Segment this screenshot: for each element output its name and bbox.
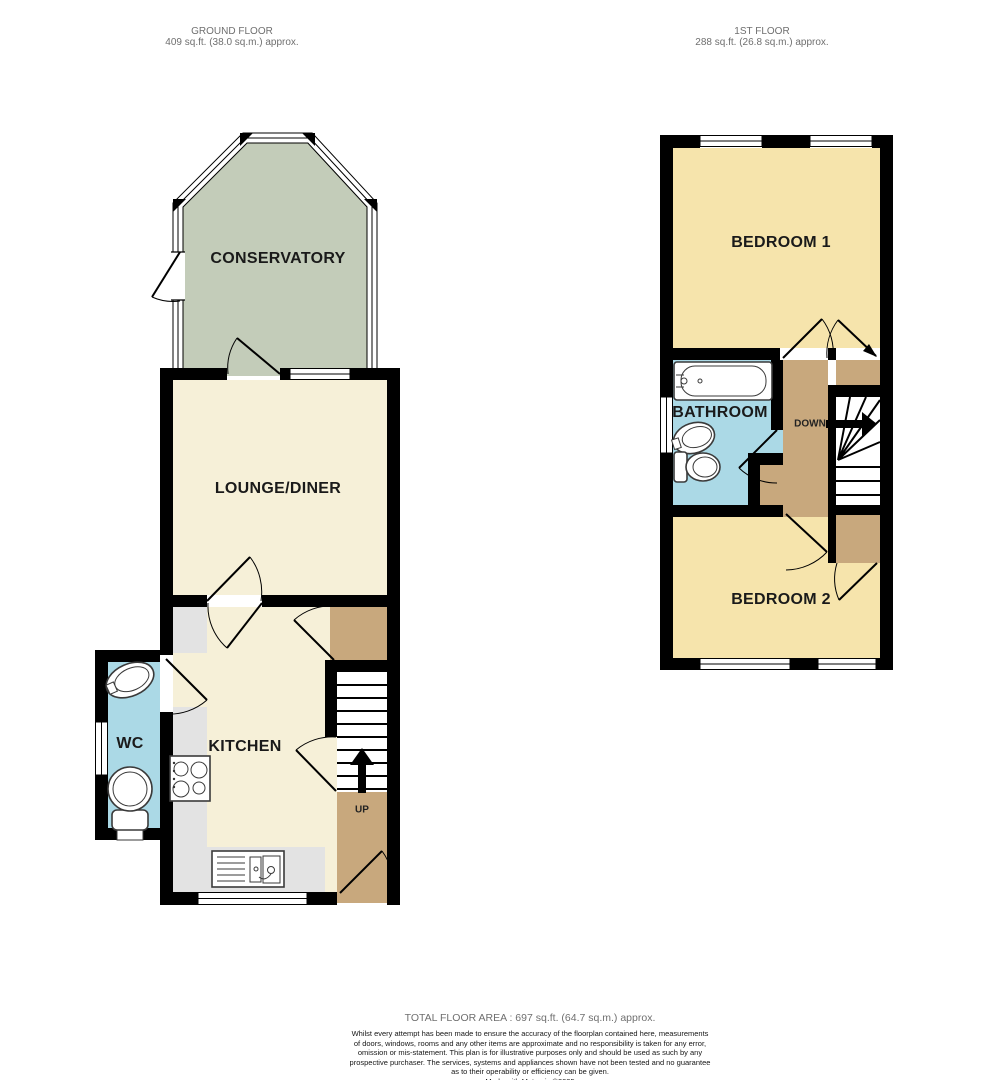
landing-strip <box>836 360 880 385</box>
disclaimer-line: omission or mis-statement. This plan is … <box>320 1048 740 1058</box>
bathroom-label: BATHROOM <box>672 404 767 422</box>
first-floor-header: 1ST FLOOR 288 sq.ft. (26.8 sq.m.) approx… <box>695 26 828 48</box>
floorplan-canvas: GROUND FLOOR 409 sq.ft. (38.0 sq.m.) app… <box>0 0 999 1080</box>
wc-toilet <box>108 767 152 840</box>
total-floor-area: TOTAL FLOOR AREA : 697 sq.ft. (64.7 sq.m… <box>405 1012 656 1024</box>
up-arrow <box>358 765 366 793</box>
up-label: UP <box>355 805 369 816</box>
landing-inset <box>836 515 880 563</box>
lounge-diner-label: LOUNGE/DINER <box>215 480 341 498</box>
conservatory-door-gap <box>171 252 185 300</box>
hob <box>170 756 210 801</box>
disclaimer-line: prospective purchaser. The services, sys… <box>320 1058 740 1068</box>
down-label: DOWN <box>794 419 826 430</box>
ground-floor-plan <box>95 133 400 905</box>
kitchen-sink-unit <box>212 851 284 887</box>
landing-top <box>330 607 387 660</box>
landing-nook <box>760 465 836 505</box>
disclaimer-line: of doors, windows, rooms and any other i… <box>320 1039 740 1049</box>
wc-label: WC <box>116 735 143 753</box>
bedroom1-label: BEDROOM 1 <box>731 234 831 252</box>
toilet <box>674 452 720 482</box>
disclaimer: Whilst every attempt has been made to en… <box>320 1029 740 1080</box>
first-floor-area: 288 sq.ft. (26.8 sq.m.) approx. <box>695 37 828 48</box>
ground-floor-header: GROUND FLOOR 409 sq.ft. (38.0 sq.m.) app… <box>165 26 298 48</box>
ground-floor-area: 409 sq.ft. (38.0 sq.m.) approx. <box>165 37 298 48</box>
first-floor-plan <box>660 135 893 670</box>
disclaimer-line: as to their operability or efficiency ca… <box>320 1067 740 1077</box>
bathtub <box>674 362 772 400</box>
floorplan-graphics <box>0 0 999 1080</box>
ground-floor-title: GROUND FLOOR <box>165 26 298 37</box>
disclaimer-line: Whilst every attempt has been made to en… <box>320 1029 740 1039</box>
first-floor-title: 1ST FLOOR <box>695 26 828 37</box>
counter <box>173 607 207 653</box>
conservatory-label: CONSERVATORY <box>210 250 345 268</box>
bedroom2-label: BEDROOM 2 <box>731 591 831 609</box>
kitchen-label: KITCHEN <box>208 738 281 756</box>
